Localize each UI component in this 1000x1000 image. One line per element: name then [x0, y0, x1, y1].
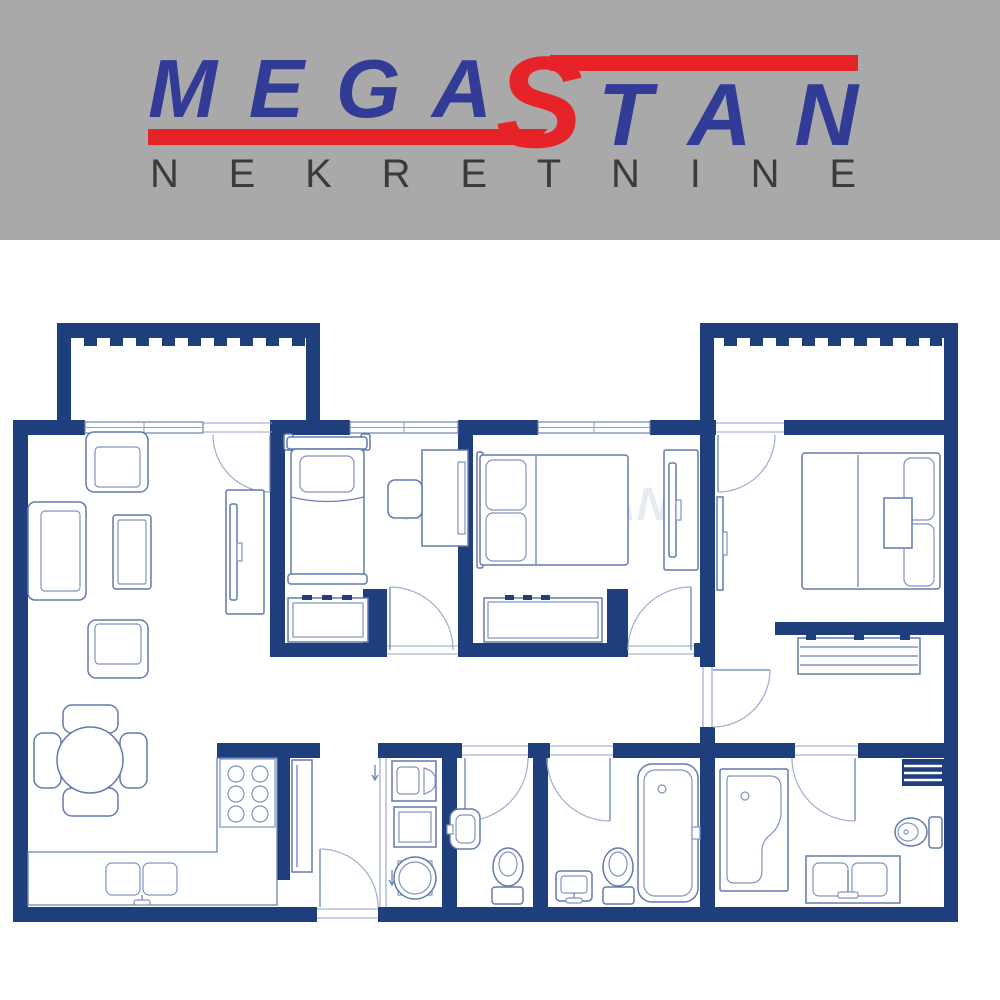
wall-left — [13, 420, 28, 922]
door-balcony-living — [203, 423, 272, 492]
tv-unit-bedroom2 — [664, 450, 698, 570]
dining-chair-right — [120, 733, 147, 788]
vanity-double-sink — [806, 856, 900, 903]
dining-area — [34, 705, 147, 816]
room-wc1 — [447, 809, 523, 904]
desk — [422, 450, 468, 546]
wall-wc1-wc2 — [533, 758, 548, 907]
room-bathroom — [720, 759, 944, 903]
tall-cabinet — [292, 760, 312, 872]
wc2-sink — [556, 871, 592, 903]
bathtub-straight — [638, 764, 700, 902]
wall-kitchen-top — [217, 743, 320, 758]
room-utility — [372, 758, 436, 907]
wall-bottom-left — [13, 907, 317, 922]
logo-word-tan: TAN — [598, 65, 860, 164]
wc1-toilet — [492, 848, 523, 904]
windows — [85, 422, 650, 433]
dressing-area — [798, 635, 920, 674]
balcony-right-railing — [724, 338, 942, 346]
tv-unit-living — [226, 490, 264, 614]
wall-right — [944, 323, 958, 922]
room-bedroom2 — [477, 450, 698, 642]
window-bedroom2 — [538, 422, 650, 433]
boiler — [394, 857, 436, 899]
sofa — [28, 502, 86, 600]
room-wc2 — [556, 764, 700, 904]
coffee-table — [113, 515, 151, 589]
brand-banner: MEGA S TAN NEKRETNINE — [0, 0, 1000, 240]
page: MEGA S TAN NEKRETNINE MEGASTAN NEKRETNIN… — [0, 0, 1000, 1000]
bed-double-master — [802, 453, 940, 589]
door-bedroom2 — [628, 587, 694, 654]
dresser-bedroom1 — [288, 595, 368, 642]
dresser-master — [798, 635, 920, 674]
bed-single — [284, 434, 370, 584]
shaft-pillar-2 — [607, 589, 628, 657]
balcony-right — [700, 323, 958, 421]
balcony-left-railing — [84, 338, 305, 346]
door-bathroom — [792, 746, 858, 821]
kitchen-sink — [106, 863, 177, 905]
bed-double — [477, 452, 628, 568]
door-entrance — [317, 849, 378, 918]
wall-living-bedroom1 — [270, 435, 285, 643]
wardrobe — [484, 595, 602, 642]
wall-bedroom2-master — [700, 435, 715, 667]
radiator — [902, 759, 944, 786]
floor-plan: MEGASTAN NEKRETNINE — [0, 300, 1000, 960]
balcony-left — [57, 323, 320, 421]
wall-bottom-right — [378, 907, 958, 922]
window-bedroom1 — [350, 422, 458, 433]
stove — [220, 759, 275, 827]
wall-master-dressing — [775, 622, 944, 635]
room-master-bedroom — [717, 453, 940, 590]
logo-word-mega: MEGA — [148, 42, 492, 135]
door-master — [703, 667, 770, 727]
dining-table — [57, 727, 123, 793]
brand-logo: MEGA S TAN NEKRETNINE — [0, 0, 1000, 240]
tv-master — [717, 497, 727, 590]
door-bedroom1 — [387, 587, 458, 654]
utility-shelf — [394, 807, 436, 847]
desk-chair — [388, 480, 422, 518]
washing-machine — [392, 761, 436, 801]
armchair-bottom — [88, 620, 148, 678]
wall-wc2-bathroom — [700, 758, 715, 907]
door-balcony-master — [716, 423, 784, 492]
armchair-top — [86, 432, 148, 492]
bathroom-toilet — [895, 817, 942, 848]
wall-kitchen-side — [277, 743, 290, 880]
door-wc2 — [547, 746, 613, 821]
bathtub-corner — [720, 769, 788, 891]
room-living — [28, 432, 264, 678]
wc1-sink — [447, 809, 480, 849]
wc2-toilet — [603, 848, 634, 904]
